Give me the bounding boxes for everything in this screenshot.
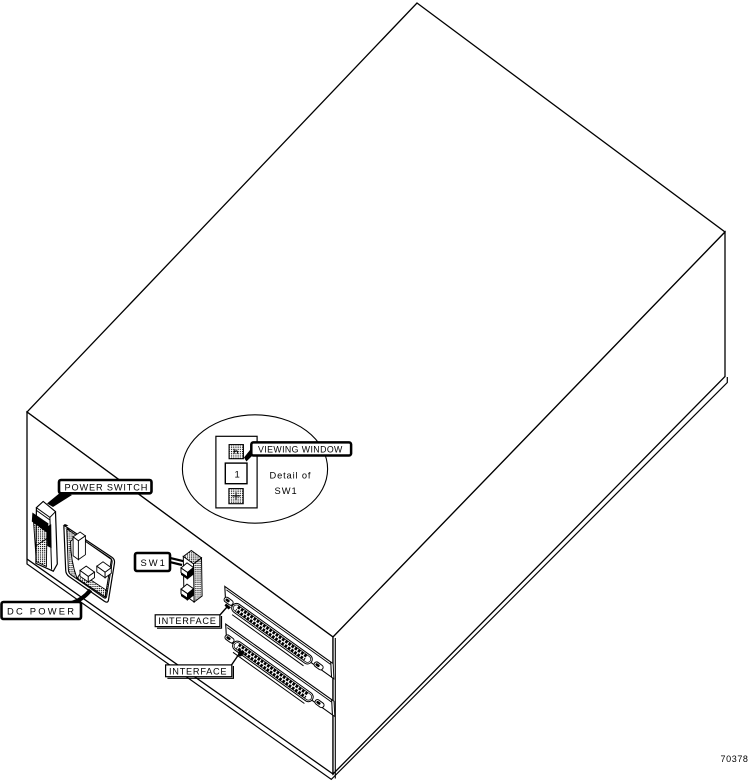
svg-text:INTERFACE: INTERFACE [158, 616, 216, 626]
svg-text:Detail of: Detail of [270, 471, 311, 481]
svg-text:70378: 70378 [721, 754, 749, 764]
svg-text:SW1: SW1 [141, 557, 167, 568]
svg-text:POWER SWITCH: POWER SWITCH [65, 482, 149, 492]
svg-text:SW1: SW1 [275, 486, 298, 496]
svg-text:VIEWING WINDOW: VIEWING WINDOW [258, 444, 343, 454]
svg-text:DC POWER: DC POWER [7, 606, 76, 617]
svg-text:INTERFACE: INTERFACE [169, 666, 227, 676]
svg-text:1: 1 [235, 470, 240, 481]
